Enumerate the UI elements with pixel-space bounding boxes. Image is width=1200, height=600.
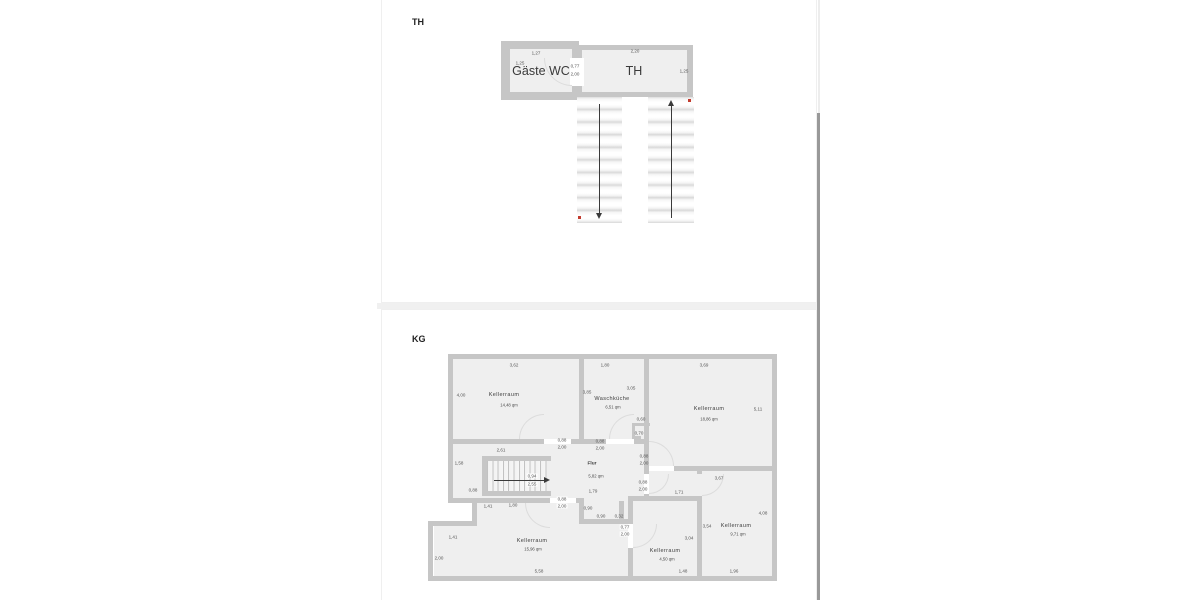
- room-label-kellerraum-2: Kellerraum: [694, 406, 725, 412]
- dim-label: 1,71: [675, 490, 684, 495]
- dim-label: 0,94: [527, 474, 538, 479]
- dim-label: 1,27: [532, 51, 541, 56]
- dim-label: 1,41: [484, 504, 493, 509]
- dim-label: 2,00: [571, 72, 580, 77]
- dim-label: 2,20: [631, 49, 640, 54]
- dim-label: 1,80: [509, 503, 518, 508]
- dim-label: 2,00: [639, 487, 648, 492]
- th-labels-layer: 1,271,25Gäste WC0,772,002,20TH1,25: [382, 0, 816, 302]
- dim-label: 1,25: [680, 69, 689, 74]
- dim-label: 0,88: [469, 488, 478, 493]
- dim-label: 1,96: [730, 569, 739, 574]
- dim-label: 5,58: [535, 569, 544, 574]
- dim-label: 2,00: [435, 556, 444, 561]
- dim-label: 0,60: [637, 417, 646, 422]
- dim-label: 1,80: [601, 363, 610, 368]
- room-label-kellerraum-1: Kellerraum: [489, 392, 520, 398]
- dim-label: 2,00: [640, 461, 649, 466]
- dim-label: 3,85: [583, 390, 592, 395]
- dim-label: 9,71 qm: [730, 532, 745, 537]
- dim-label: 3,54: [703, 524, 712, 529]
- dim-label: 2,00: [620, 532, 631, 537]
- dim-label: 6,51 qm: [605, 405, 620, 410]
- dim-label: 0,32: [615, 514, 624, 519]
- dim-label: 5,11: [754, 407, 762, 412]
- dim-label: 2,00: [596, 446, 605, 451]
- scrollbar-thumb[interactable]: [817, 113, 820, 600]
- dim-label: 4,08: [759, 511, 768, 516]
- document-page-kg: KG: [381, 309, 817, 600]
- dim-label: 14,48 qm: [500, 403, 517, 408]
- room-label-kellerraum-3: Kellerraum: [517, 538, 548, 544]
- dim-label: 15,96 qm: [524, 547, 541, 552]
- document-page-th: TH 1,271,25Gäste WC0,772,002,20TH1,25: [381, 0, 817, 303]
- dim-label: 0,90: [584, 506, 593, 511]
- dim-label: 0,88: [596, 439, 605, 444]
- dim-label: 0,77: [571, 64, 580, 69]
- floorplan-kg: 3,624,00Kellerraum14,48 qm1,803,853,05Wa…: [382, 310, 816, 600]
- room-label-waschkueche: Waschküche: [594, 396, 629, 402]
- dim-label: 0,77: [620, 525, 631, 530]
- dim-label: 2,61: [497, 448, 506, 453]
- dim-label: 2,55: [527, 482, 538, 487]
- room-label-kellerraum-4: Kellerraum: [650, 548, 681, 554]
- floorplan-th: 1,271,25Gäste WC0,772,002,20TH1,25: [382, 0, 816, 302]
- dim-label: 1,79: [589, 489, 598, 494]
- room-label-flur: Flur: [587, 462, 596, 467]
- dim-label: 1,48: [679, 569, 688, 574]
- dim-label: 1,58: [455, 461, 464, 466]
- dim-label: 0,90: [597, 514, 606, 519]
- room-label-gaeste-wc: Gäste WC: [512, 64, 570, 78]
- dim-label: 3,67: [715, 476, 724, 481]
- dim-label: 3,04: [685, 536, 694, 541]
- dim-label: 2,00: [558, 445, 567, 450]
- dim-label: 0,88: [557, 497, 568, 502]
- dim-label: 0,88: [640, 454, 649, 459]
- dim-label: 1,41: [449, 535, 458, 540]
- dim-label: 4,50 qm: [659, 557, 674, 562]
- kg-labels-layer: 3,624,00Kellerraum14,48 qm1,803,853,05Wa…: [382, 310, 816, 600]
- dim-label: 3,69: [700, 363, 709, 368]
- dim-label: 3,05: [627, 386, 636, 391]
- dim-label: 0,70: [635, 431, 644, 436]
- dim-label: 3,62: [510, 363, 519, 368]
- dim-label: 5,82 qm: [588, 474, 603, 479]
- room-label-th: TH: [626, 64, 643, 78]
- dim-label: 0,88: [639, 480, 648, 485]
- dim-label: 0,88: [558, 438, 567, 443]
- dim-label: 18,86 qm: [700, 417, 717, 422]
- dim-label: 2,00: [557, 504, 568, 509]
- room-label-kellerraum-5: Kellerraum: [721, 523, 752, 529]
- viewer-canvas: TH 1,271,25Gäste WC0,772,002,20TH1,25: [0, 0, 1200, 600]
- dim-label: 4,00: [457, 393, 466, 398]
